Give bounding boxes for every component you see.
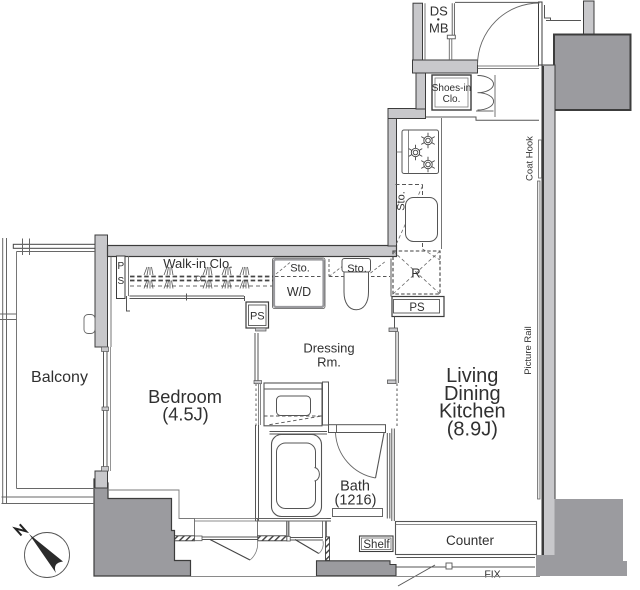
svg-text:Clo.: Clo. xyxy=(443,94,461,105)
svg-text:PS: PS xyxy=(409,302,425,314)
svg-text:R: R xyxy=(411,266,420,281)
svg-text:Coat Hook: Coat Hook xyxy=(525,136,536,181)
svg-text:Counter: Counter xyxy=(446,533,495,548)
svg-text:Dressing: Dressing xyxy=(303,341,354,356)
svg-text:Sto.: Sto. xyxy=(290,263,310,275)
svg-text:P: P xyxy=(117,261,124,272)
svg-text:Shoes-in: Shoes-in xyxy=(432,83,471,94)
svg-text:Walk-in Clo.: Walk-in Clo. xyxy=(163,256,233,271)
svg-text:(4.5J): (4.5J) xyxy=(162,405,209,425)
svg-text:Sto.: Sto. xyxy=(347,263,367,275)
svg-text:Balcony: Balcony xyxy=(31,369,88,386)
svg-text:Shelf: Shelf xyxy=(363,539,390,551)
svg-text:Rm.: Rm. xyxy=(317,355,341,370)
svg-text:FIX: FIX xyxy=(484,569,500,581)
svg-text:PS: PS xyxy=(250,311,265,323)
svg-text:(1216): (1216) xyxy=(335,493,377,509)
svg-text:MB: MB xyxy=(429,20,449,35)
svg-text:Picture Rail: Picture Rail xyxy=(523,326,534,375)
svg-text:W/D: W/D xyxy=(287,285,311,299)
svg-text:DS: DS xyxy=(430,4,448,19)
svg-text:S: S xyxy=(117,276,124,287)
svg-text:(8.9J): (8.9J) xyxy=(447,418,498,440)
